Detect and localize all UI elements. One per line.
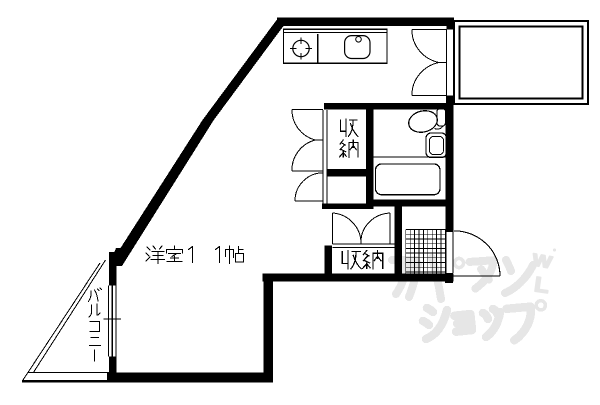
- svg-text:W: W: [531, 251, 554, 273]
